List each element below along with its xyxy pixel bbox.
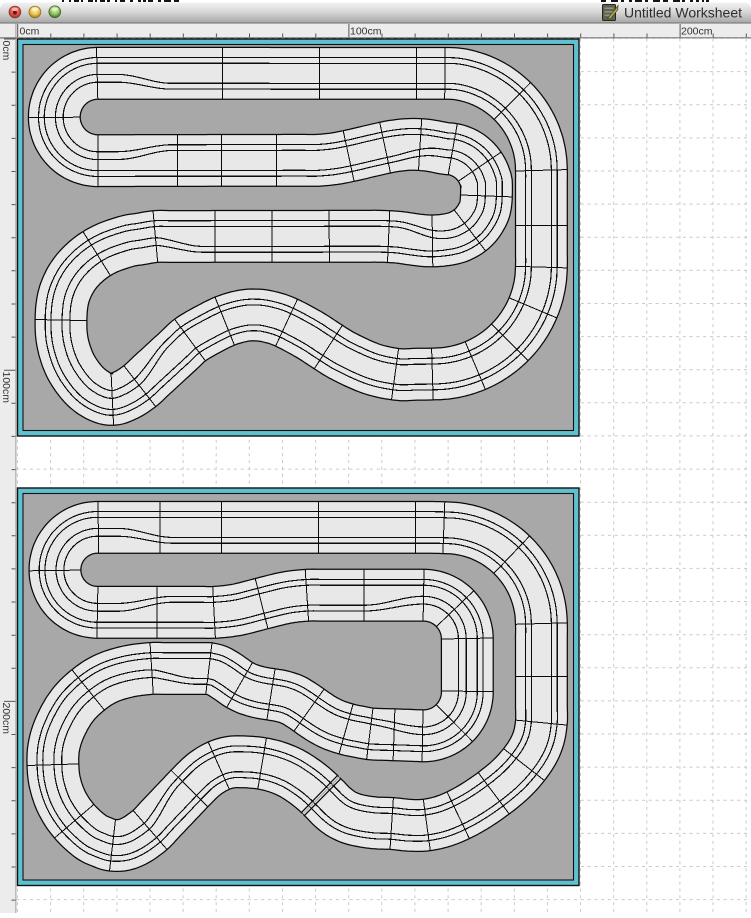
svg-text:0cm: 0cm — [0, 41, 12, 61]
svg-text:200cm: 200cm — [681, 26, 713, 38]
svg-text:100cm: 100cm — [0, 372, 12, 404]
svg-text:Untitled Worksheet: Untitled Worksheet — [624, 5, 742, 21]
svg-text:200cm: 200cm — [0, 703, 12, 735]
svg-text:100cm: 100cm — [350, 26, 382, 38]
svg-text:0cm: 0cm — [20, 26, 40, 38]
